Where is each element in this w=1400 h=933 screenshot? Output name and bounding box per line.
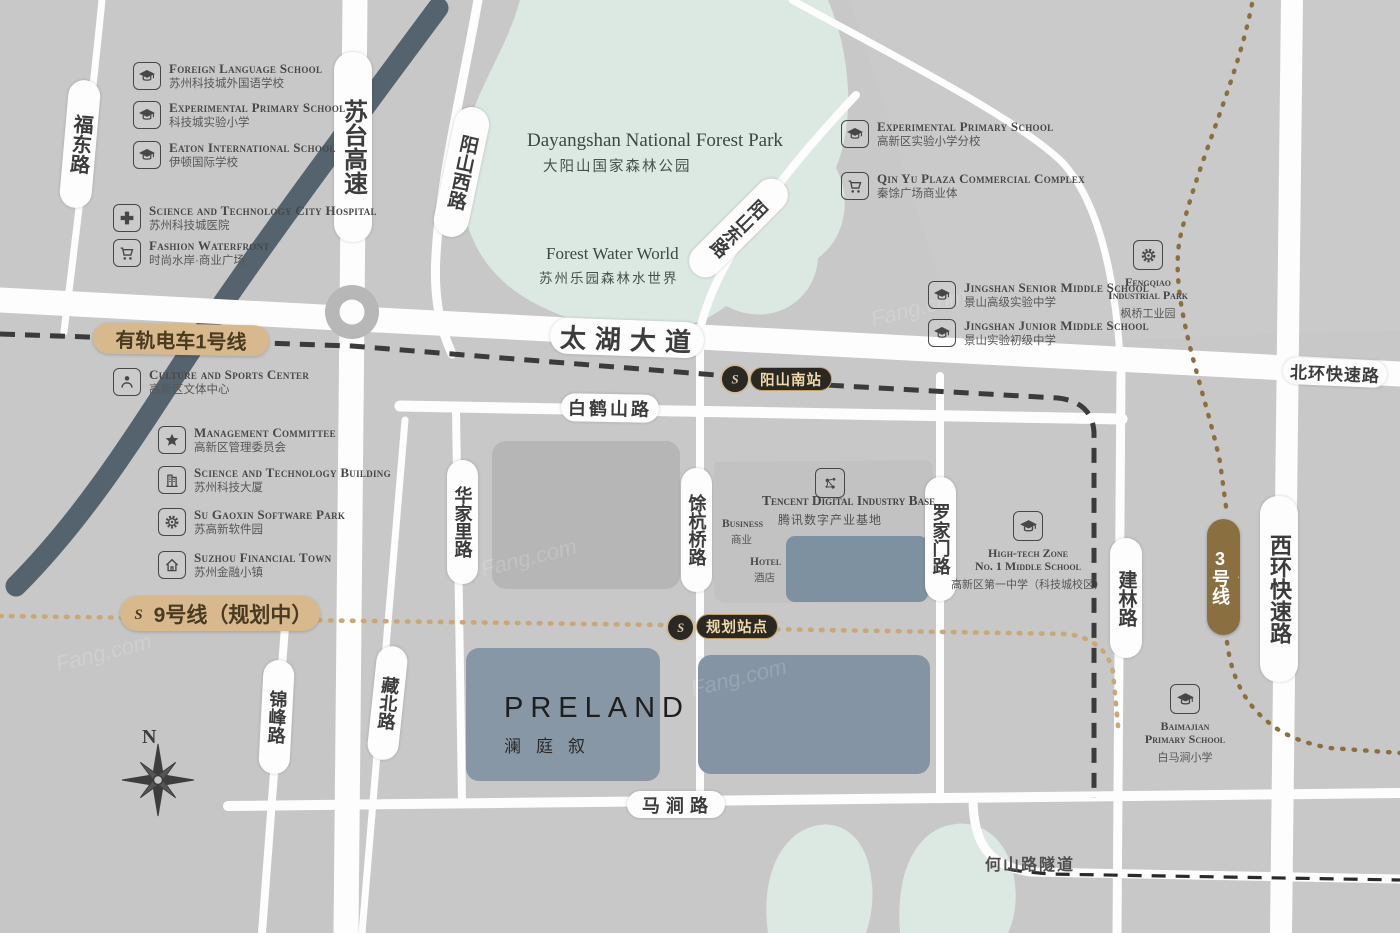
star-icon — [158, 426, 186, 454]
medical-cross-icon — [113, 204, 141, 232]
tencent-cn: 腾讯数字产业基地 — [778, 511, 882, 528]
poi-baimajian-primary: Baimajian Primary School 白马涧小学 — [1129, 684, 1241, 765]
poi-jingshan-junior: Jingshan Junior Middle School 景山实验初级中学 — [928, 319, 1149, 347]
poi-software-park: Su Gaoxin Software Park 苏高新软件园 — [158, 508, 345, 536]
site-block-east — [698, 655, 930, 774]
road-label-jinfeng: 锦峰路 — [258, 659, 295, 774]
line3-label: 3号线 — [1207, 549, 1233, 605]
poi-foreign-language-school: Foreign Language School 苏州科技城外国语学校 — [133, 62, 322, 90]
graduation-cap-icon — [133, 141, 161, 169]
poi-cn: 苏州科技城医院 — [149, 220, 377, 232]
poi-en: Culture and Sports Center — [149, 368, 309, 381]
business-en: Business — [722, 518, 763, 530]
planned-station-badge: 规划站点 — [696, 614, 778, 639]
poi-cn: 科技城实验小学 — [169, 117, 345, 129]
hotel-en: Hotel — [750, 556, 781, 568]
hotel-cn: 酒店 — [754, 570, 775, 585]
location-map: S — [0, 0, 1400, 933]
road-label-heshan-tunnel: 何山路隧道 — [985, 851, 1075, 875]
graduation-cap-icon — [1170, 684, 1200, 714]
poi-en: Baimajian Primary School — [1145, 720, 1225, 746]
interchange-ring-center — [340, 300, 365, 325]
poi-en: Fashion Waterfront — [149, 239, 270, 252]
poi-cn: 苏高新软件园 — [194, 524, 345, 536]
business-cn: 商业 — [731, 532, 752, 547]
compass-north-label: N — [142, 726, 156, 749]
poi-en: Experimental Primary School — [877, 120, 1053, 133]
yangshan-south-station-icon — [720, 364, 750, 394]
hotel-block — [786, 536, 928, 602]
road-label-baihe: 白鹤山路 — [561, 393, 659, 423]
poi-sci-tech-building: Science and Technology Building 苏州科技大厦 — [158, 466, 391, 494]
graduation-cap-icon — [928, 319, 956, 347]
poi-en: Experimental Primary School — [169, 101, 345, 114]
person-icon — [113, 368, 141, 396]
tencent-en: Tencent Digital Industry Base — [762, 493, 935, 509]
poi-en: Foreign Language School — [169, 62, 322, 75]
poi-cn: 枫桥工业园 — [1121, 305, 1176, 321]
poi-cn: 高新区文体中心 — [149, 384, 309, 396]
building-icon — [158, 466, 186, 494]
poi-cn: 秦馀广场商业体 — [877, 188, 1085, 200]
poi-cn: 伊顿国际学校 — [169, 157, 336, 169]
poi-experimental-primary-branch: Experimental Primary School 高新区实验小学分校 — [841, 120, 1053, 148]
poi-cn: 时尚水岸·商业广场 — [149, 255, 270, 267]
poi-cn: 苏州科技大厦 — [194, 482, 391, 494]
poi-en: Management Committee — [194, 426, 336, 439]
poi-experimental-primary-school: Experimental Primary School 科技城实验小学 — [133, 101, 345, 129]
poi-en: Qin Yu Plaza Commercial Complex — [877, 172, 1085, 185]
graduation-cap-icon — [928, 281, 956, 309]
terrain-panel — [0, 620, 360, 933]
poi-fengqiao-industrial-park: Fengqiao Industrial Park 枫桥工业园 — [1093, 240, 1203, 321]
road-label-xihuan: 西环快速路 — [1260, 496, 1298, 682]
project-logo: PRELAND 澜庭叙 — [504, 692, 690, 757]
poi-city-hospital: Science and Technology City Hospital 苏州科… — [113, 204, 377, 232]
poi-cn: 高新区管理委员会 — [194, 442, 336, 454]
graduation-cap-icon — [1013, 511, 1043, 541]
gear-icon — [158, 508, 186, 536]
poi-fashion-waterfront: Fashion Waterfront 时尚水岸·商业广场 — [113, 239, 270, 267]
shopping-cart-icon — [841, 172, 869, 200]
poi-financial-town: Suzhou Financial Town 苏州金融小镇 — [158, 551, 331, 579]
road-label-taihu: 太湖大道 — [549, 317, 704, 358]
line3-badge: 3号线 — [1207, 519, 1240, 635]
road-label-majian: 马涧路 — [627, 791, 725, 818]
poi-qinyu-plaza: Qin Yu Plaza Commercial Complex 秦馀广场商业体 — [841, 172, 1085, 200]
poi-en: Science and Technology Building — [194, 466, 391, 479]
graduation-cap-icon — [133, 101, 161, 129]
shopping-cart-icon — [113, 239, 141, 267]
road-label-yuhangqiao: 馀杭桥路 — [681, 468, 712, 592]
poi-cn: 高新区第一中学（科技城校区） — [951, 576, 1105, 592]
project-name: PRELAND — [504, 692, 690, 725]
poi-hightech-zone-middle-school: High-tech Zone No. 1 Middle School 高新区第一… — [938, 511, 1118, 592]
park-name-en: Dayangshan National Forest Park — [527, 130, 783, 152]
metro-s-logo-icon — [128, 603, 149, 624]
poi-cn: 景山实验初级中学 — [964, 335, 1149, 347]
water-world-en: Forest Water World — [546, 244, 679, 264]
poi-cn: 高新区实验小学分校 — [877, 136, 1053, 148]
water-world-cn: 苏州乐园森林水世界 — [539, 267, 679, 287]
line9-label: 9号线（规划中） — [154, 599, 313, 629]
yangshan-south-station-badge: 阳山南站 — [750, 367, 832, 391]
metro-s-logo-icon — [1237, 569, 1240, 585]
road-label-huajiali: 华家里路 — [447, 460, 478, 584]
graduation-cap-icon — [133, 62, 161, 90]
line9-banner: 9号线（规划中） — [120, 596, 320, 631]
poi-en: High-tech Zone No. 1 Middle School — [975, 547, 1081, 573]
planned-station-icon — [666, 613, 695, 642]
poi-en: Su Gaoxin Software Park — [194, 508, 345, 521]
poi-culture-sports-center: Culture and Sports Center 高新区文体中心 — [113, 368, 309, 396]
poi-cn: 苏州金融小镇 — [194, 567, 331, 579]
poi-eaton-international-school: Eaton International School 伊顿国际学校 — [133, 141, 336, 169]
poi-en: Suzhou Financial Town — [194, 551, 331, 564]
gear-icon — [1133, 240, 1163, 270]
project-name-cn: 澜庭叙 — [504, 732, 690, 757]
poi-en: Science and Technology City Hospital — [149, 204, 377, 217]
road-label-beihuan: 北环快速路 — [1282, 357, 1387, 389]
poi-cn: 苏州科技城外国语学校 — [169, 78, 322, 90]
poi-en: Fengqiao Industrial Park — [1108, 276, 1188, 302]
block-gray — [492, 441, 680, 589]
poi-en: Eaton International School — [169, 141, 336, 154]
park-name-cn: 大阳山国家森林公园 — [543, 155, 692, 176]
house-icon — [158, 551, 186, 579]
tram-line1-banner: 有轨电车1号线 — [93, 322, 270, 356]
graduation-cap-icon — [841, 120, 869, 148]
poi-cn: 白马涧小学 — [1158, 749, 1213, 765]
poi-management-committee: Management Committee 高新区管理委员会 — [158, 426, 336, 454]
